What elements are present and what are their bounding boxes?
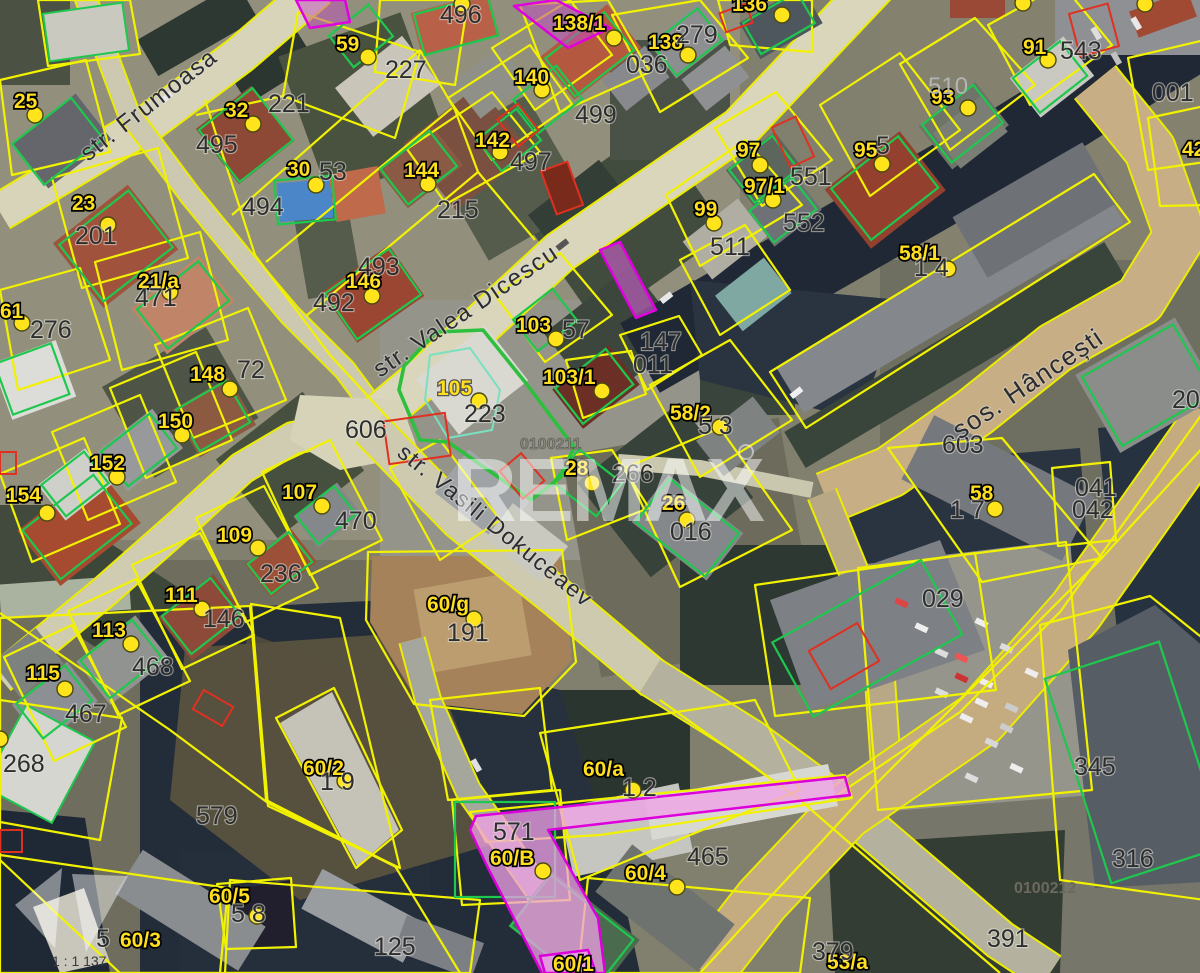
- svg-text:60/g: 60/g: [427, 593, 469, 616]
- svg-text:95: 95: [854, 139, 878, 162]
- svg-text:138/1: 138/1: [553, 12, 606, 35]
- svg-text:036: 036: [626, 51, 668, 79]
- svg-text:42: 42: [1182, 138, 1200, 161]
- svg-text:148: 148: [190, 363, 225, 386]
- svg-text:142: 142: [475, 129, 510, 152]
- svg-text:154: 154: [6, 484, 41, 507]
- svg-text:115: 115: [26, 662, 60, 685]
- svg-text:227: 227: [385, 56, 427, 84]
- svg-text:268: 268: [3, 750, 45, 778]
- svg-text:391: 391: [987, 925, 1029, 953]
- svg-text:552: 552: [783, 209, 825, 237]
- svg-text:60/a: 60/a: [583, 758, 624, 781]
- svg-text:60/3: 60/3: [120, 929, 161, 952]
- svg-text:146: 146: [203, 605, 245, 633]
- svg-text:23: 23: [72, 192, 95, 215]
- svg-text:113: 113: [92, 619, 126, 642]
- svg-text:379: 379: [812, 938, 854, 966]
- svg-text:042: 042: [1072, 496, 1114, 524]
- svg-text:0100212: 0100212: [1014, 880, 1076, 897]
- svg-text:606: 606: [345, 416, 387, 444]
- svg-text:72: 72: [237, 356, 265, 384]
- svg-text:91: 91: [1023, 36, 1047, 59]
- svg-text:99: 99: [694, 198, 717, 221]
- svg-text:5: 5: [876, 132, 890, 160]
- svg-text:494: 494: [242, 193, 284, 221]
- svg-text:61: 61: [0, 300, 24, 323]
- svg-text:1 : 1 137: 1 : 1 137: [52, 953, 107, 969]
- svg-text:579: 579: [196, 802, 238, 830]
- svg-text:221: 221: [268, 90, 310, 118]
- svg-text:107: 107: [282, 481, 317, 504]
- svg-text:103/1: 103/1: [543, 366, 596, 389]
- svg-text:495: 495: [196, 131, 238, 159]
- svg-text:REMAX: REMAX: [452, 441, 765, 541]
- svg-text:57: 57: [562, 316, 590, 344]
- svg-text:316: 316: [1112, 845, 1154, 873]
- svg-text:152: 152: [90, 452, 125, 475]
- svg-text:001: 001: [1152, 79, 1194, 107]
- svg-text:571: 571: [493, 818, 535, 846]
- svg-text:1 9: 1 9: [320, 768, 355, 796]
- svg-text:32: 32: [225, 99, 248, 122]
- svg-text:5 3: 5 3: [698, 412, 733, 440]
- svg-text:191: 191: [447, 619, 489, 647]
- svg-text:465: 465: [687, 843, 729, 871]
- svg-text:223: 223: [464, 400, 506, 428]
- svg-text:59: 59: [336, 33, 359, 56]
- svg-text:345: 345: [1074, 753, 1116, 781]
- svg-text:492: 492: [313, 289, 355, 317]
- svg-text:496: 496: [440, 1, 482, 29]
- svg-text:25: 25: [14, 90, 38, 113]
- svg-text:510: 510: [928, 73, 968, 100]
- svg-text:60/B: 60/B: [490, 847, 534, 870]
- svg-text:215: 215: [437, 196, 479, 224]
- svg-text:468: 468: [132, 653, 174, 681]
- svg-text:103: 103: [516, 314, 551, 337]
- svg-text:493: 493: [358, 253, 400, 281]
- svg-text:1 2: 1 2: [622, 774, 657, 802]
- svg-text:201: 201: [75, 222, 117, 250]
- svg-text:471: 471: [135, 284, 177, 312]
- svg-text:511: 511: [710, 233, 750, 261]
- svg-text:1 7: 1 7: [950, 496, 985, 524]
- svg-text:276: 276: [30, 316, 72, 344]
- svg-text:150: 150: [158, 410, 193, 433]
- svg-text:53: 53: [319, 158, 347, 186]
- svg-text:140: 140: [514, 66, 549, 89]
- svg-text:60/1: 60/1: [553, 953, 594, 973]
- svg-text:279: 279: [676, 21, 718, 49]
- svg-text:497: 497: [510, 148, 552, 176]
- svg-text:470: 470: [335, 507, 377, 535]
- svg-text:97/1: 97/1: [744, 175, 785, 198]
- svg-text:1 4: 1 4: [914, 254, 949, 282]
- svg-text:5 8: 5 8: [231, 900, 266, 928]
- svg-text:109: 109: [217, 524, 252, 547]
- svg-text:97: 97: [737, 139, 760, 162]
- svg-text:467: 467: [65, 700, 107, 728]
- svg-text:105: 105: [437, 377, 472, 400]
- svg-text:111: 111: [165, 584, 198, 607]
- svg-text:136: 136: [732, 0, 767, 16]
- svg-text:236: 236: [260, 560, 302, 588]
- svg-text:011: 011: [633, 351, 673, 379]
- svg-text:543: 543: [1060, 37, 1102, 65]
- svg-text:60/4: 60/4: [625, 862, 666, 885]
- svg-text:20: 20: [1172, 386, 1200, 414]
- svg-text:125: 125: [374, 933, 416, 961]
- svg-text:551: 551: [790, 163, 832, 191]
- svg-text:499: 499: [575, 101, 617, 129]
- svg-text:029: 029: [922, 585, 964, 613]
- svg-text:30: 30: [287, 158, 310, 181]
- svg-text:144: 144: [404, 159, 439, 182]
